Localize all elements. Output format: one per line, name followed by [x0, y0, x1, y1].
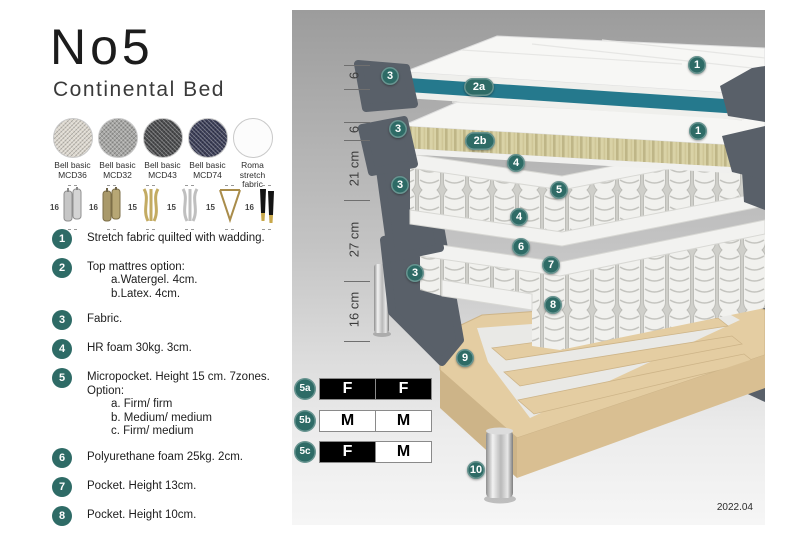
leg-option: 15 — [167, 184, 204, 231]
list-item-suboption: a.Watergel. 4cm. — [87, 274, 198, 288]
fabric-swatch-item: Bell basicMCD32 — [97, 118, 138, 190]
list-item-suboption: a. Firm/ firm — [87, 398, 290, 412]
measure-dash — [185, 185, 194, 186]
scale-measurement-label: 6 — [347, 48, 362, 104]
firmness-cell: M — [376, 411, 431, 431]
leg-graphic — [61, 184, 85, 231]
diagram-badge-2a: 2a — [464, 78, 494, 96]
leg-option: 16 — [245, 184, 282, 231]
fabric-swatch — [98, 118, 138, 158]
list-item-suboption: b.Latex. 4cm. — [87, 288, 198, 302]
fabric-swatch-label: Bell basicMCD32 — [99, 161, 135, 180]
fabric-swatch — [188, 118, 228, 158]
measure-dash — [68, 229, 77, 230]
list-item: 8Pocket. Height 10cm. — [52, 508, 290, 526]
list-item: 5Micropocket. Height 15 cm. 7zones. Opti… — [52, 370, 290, 439]
diagram-badge-4: 4 — [510, 208, 528, 226]
cylinder-silver-icon — [61, 187, 85, 228]
fabric-swatch — [233, 118, 273, 158]
firmness-row-5c: 5cFM — [294, 441, 432, 463]
diagram-badge-3: 3 — [391, 176, 409, 194]
measure-dash — [68, 185, 77, 186]
fabric-swatches: Bell basicMCD36Bell basicMCD32Bell basic… — [52, 118, 273, 190]
list-item-suboption: b. Medium/ medium — [87, 412, 290, 426]
list-item-number-badge: 5 — [52, 368, 72, 388]
firmness-cell: F — [376, 379, 431, 399]
diagram-badge-10: 10 — [467, 461, 485, 479]
firmness-cell: M — [376, 442, 431, 462]
scale-measurement-label: 16 cm — [347, 282, 362, 338]
list-item-number-badge: 1 — [52, 229, 72, 249]
fabric-swatch-label: Bell basicMCD36 — [54, 161, 90, 180]
fabric-swatch — [143, 118, 183, 158]
leg-height-label: 15 — [206, 203, 215, 212]
diagram-badge-2b: 2b — [465, 132, 495, 150]
tapered-black-gold-icon — [256, 187, 278, 228]
firmness-badge-5a: 5a — [294, 378, 316, 400]
fabric-swatch-label: Bell basicMCD74 — [189, 161, 225, 180]
diagram-badge-7: 7 — [542, 256, 560, 274]
measure-dash — [146, 185, 155, 186]
list-item-number-badge: 3 — [52, 310, 72, 330]
diagram-badge-4: 4 — [507, 154, 525, 172]
measure-dash — [225, 229, 234, 230]
measure-dash — [107, 229, 116, 230]
leg-graphic — [100, 184, 124, 231]
leg-option: 16 — [50, 184, 87, 231]
list-item-text: Pocket. Height 10cm. — [87, 508, 196, 522]
metal-leg-front — [484, 428, 516, 504]
product-title: No5 — [50, 18, 154, 76]
list-item-number-badge: 8 — [52, 506, 72, 526]
list-item: 1Stretch fabric quilted with wadding. — [52, 231, 290, 249]
fabric-swatch-label: Bell basicMCD43 — [144, 161, 180, 180]
leg-height-label: 16 — [245, 203, 254, 212]
curved-silver-icon — [178, 187, 202, 228]
list-item-suboption: c. Firm/ medium — [87, 425, 290, 439]
version-label: 2022.04 — [717, 502, 753, 513]
diagram-badge-1: 1 — [689, 122, 707, 140]
measure-dash — [185, 229, 194, 230]
scale-tick — [344, 200, 370, 201]
leg-height-label: 16 — [50, 203, 59, 212]
product-sheet: No5 Continental Bed Bell basicMCD36Bell … — [0, 0, 800, 533]
leg-option: 16 — [89, 184, 126, 231]
fabric-swatch-item: Bell basicMCD74 — [187, 118, 228, 190]
leg-height-label: 15 — [167, 203, 176, 212]
diagram-badge-9: 9 — [456, 349, 474, 367]
product-subtitle: Continental Bed — [53, 78, 225, 102]
leg-option: 15 — [128, 184, 165, 231]
leg-option: 15 — [206, 184, 243, 231]
list-item-text: Polyurethane foam 25kg. 2cm. — [87, 450, 243, 464]
hairpin-icon — [217, 187, 243, 228]
firmness-badge-5b: 5b — [294, 410, 316, 432]
list-item: 7Pocket. Height 13cm. — [52, 479, 290, 497]
firmness-row-5b: 5bMM — [294, 410, 432, 432]
list-item-text: HR foam 30kg. 3cm. — [87, 341, 192, 355]
leg-height-label: 15 — [128, 203, 137, 212]
firmness-badge-5c: 5c — [294, 441, 316, 463]
measure-dash — [146, 229, 155, 230]
fabric-swatch — [53, 118, 93, 158]
diagram-badge-1: 1 — [688, 56, 706, 74]
list-item-number-badge: 6 — [52, 448, 72, 468]
list-item-text: Top mattres option:a.Watergel. 4cm.b.Lat… — [87, 260, 198, 301]
diagram-badge-3: 3 — [381, 67, 399, 85]
leg-graphic — [217, 184, 243, 231]
list-item: 6Polyurethane foam 25kg. 2cm. — [52, 450, 290, 468]
firmness-cell: F — [320, 379, 375, 399]
firmness-row-5a: 5aFF — [294, 378, 432, 400]
diagram-badge-6: 6 — [512, 238, 530, 256]
measure-dash — [225, 185, 234, 186]
fabric-swatch-item: Romastretch fabric — [232, 118, 273, 190]
firmness-cell: M — [320, 411, 375, 431]
scale-measurement-label: 21 cm — [347, 141, 362, 197]
list-item: 3Fabric. — [52, 312, 290, 330]
leg-graphic — [139, 184, 163, 231]
measure-dash — [262, 229, 271, 230]
firmness-cell: F — [320, 442, 375, 462]
cylinder-brass-icon — [100, 187, 124, 228]
leg-options: 161615151516 — [50, 184, 282, 231]
curved-gold-icon — [139, 187, 163, 228]
firmness-bar: FF — [319, 378, 432, 400]
diagram-badge-3: 3 — [406, 264, 424, 282]
list-item: 2Top mattres option:a.Watergel. 4cm.b.La… — [52, 260, 290, 301]
list-item-text: Fabric. — [87, 312, 122, 326]
info-column: No5 Continental Bed Bell basicMCD36Bell … — [0, 0, 292, 533]
fabric-swatch-item: Bell basicMCD36 — [52, 118, 93, 190]
leg-graphic — [256, 184, 278, 231]
firmness-bar: MM — [319, 410, 432, 432]
list-item: 4HR foam 30kg. 3cm. — [52, 341, 290, 359]
measure-dash — [262, 185, 271, 186]
measure-dash — [107, 185, 116, 186]
leg-graphic — [178, 184, 202, 231]
list-item-text: Stretch fabric quilted with wadding. — [87, 231, 265, 245]
list-item-number-badge: 2 — [52, 258, 72, 278]
fabric-swatch-item: Bell basicMCD43 — [142, 118, 183, 190]
scale-measurement-label: 27 cm — [347, 211, 362, 267]
firmness-bar: FM — [319, 441, 432, 463]
diagram-panel: 6621 cm27 cm16 cm 132a32b143546738910 5a… — [292, 10, 765, 525]
list-item-number-badge: 7 — [52, 477, 72, 497]
feature-list: 1Stretch fabric quilted with wadding.2To… — [52, 231, 290, 533]
diagram-badge-8: 8 — [544, 296, 562, 314]
leg-height-label: 16 — [89, 203, 98, 212]
diagram-badge-5: 5 — [550, 181, 568, 199]
diagram-badge-3: 3 — [389, 120, 407, 138]
list-item-text: Pocket. Height 13cm. — [87, 479, 196, 493]
list-item-number-badge: 4 — [52, 339, 72, 359]
list-item-text: Micropocket. Height 15 cm. 7zones. Optio… — [87, 370, 290, 439]
scale-tick — [344, 341, 370, 342]
